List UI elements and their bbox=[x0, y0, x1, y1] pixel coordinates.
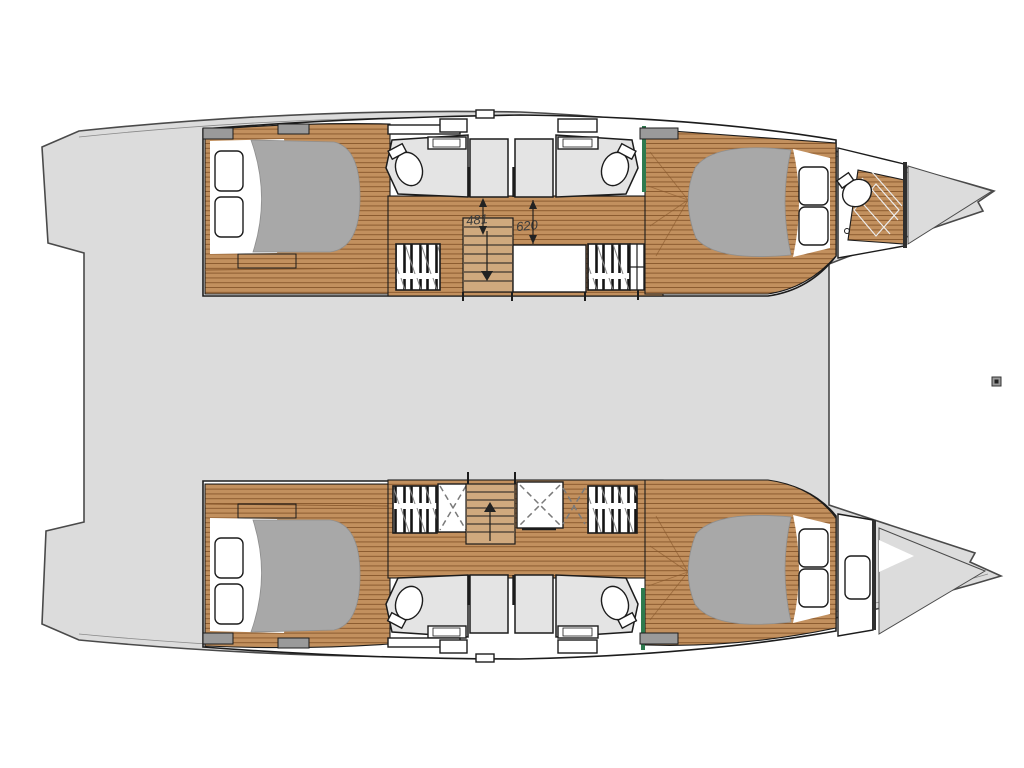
deck-hatch bbox=[440, 640, 467, 653]
stbd-shower-aft bbox=[470, 575, 508, 633]
pillow bbox=[215, 151, 243, 191]
stbd-louver-locker-fwd bbox=[588, 486, 637, 533]
port-shower-fwd bbox=[515, 139, 553, 197]
port-aft-bed-mattress bbox=[251, 140, 360, 252]
port-fwd-bed-mattress bbox=[688, 148, 791, 257]
stbd-aft-bed-mattress bbox=[251, 520, 360, 632]
pillow bbox=[215, 584, 243, 624]
stbd-fwd-bed-mattress bbox=[688, 515, 791, 624]
dim-label-aft: 481 bbox=[465, 211, 488, 228]
deck-hatch bbox=[278, 638, 309, 648]
catamaran-deck-plan: 481 620 bbox=[0, 0, 1024, 768]
bow-bulkhead bbox=[903, 162, 907, 248]
deck-hatch bbox=[558, 119, 597, 132]
deck-hatch bbox=[440, 119, 467, 132]
mast-step bbox=[476, 110, 494, 118]
mast-step bbox=[476, 654, 494, 662]
bow-bulkhead bbox=[872, 520, 876, 630]
port-shower-aft bbox=[470, 139, 508, 197]
deck-hatch bbox=[203, 128, 233, 139]
floor-plan-page: 481 620 bbox=[0, 0, 1024, 768]
pillow bbox=[799, 167, 828, 205]
deck-hatch bbox=[278, 124, 309, 134]
port-hull: 481 620 bbox=[203, 110, 992, 301]
port-louver-locker-fwd bbox=[588, 244, 630, 290]
stbd-shower-fwd bbox=[515, 575, 553, 633]
forepeak-hatch bbox=[845, 556, 870, 599]
port-louver-locker-aft bbox=[396, 244, 440, 290]
pillow bbox=[799, 529, 828, 567]
deck-hatch bbox=[558, 640, 597, 653]
deck-hatch bbox=[203, 633, 233, 644]
skylight-hatch-small bbox=[438, 484, 468, 532]
pillow bbox=[215, 197, 243, 237]
starboard-hull bbox=[203, 472, 985, 662]
deck-hatch bbox=[640, 633, 678, 644]
stbd-louver-locker-aft bbox=[393, 486, 437, 533]
small-marker-icon bbox=[992, 377, 1001, 386]
deck-hatch bbox=[640, 128, 678, 139]
pillow bbox=[799, 207, 828, 245]
pillow bbox=[215, 538, 243, 578]
dim-label-fwd: 620 bbox=[515, 217, 539, 234]
skylight-hatch-large bbox=[517, 482, 563, 529]
port-locker bbox=[513, 245, 586, 292]
pillow bbox=[799, 569, 828, 607]
